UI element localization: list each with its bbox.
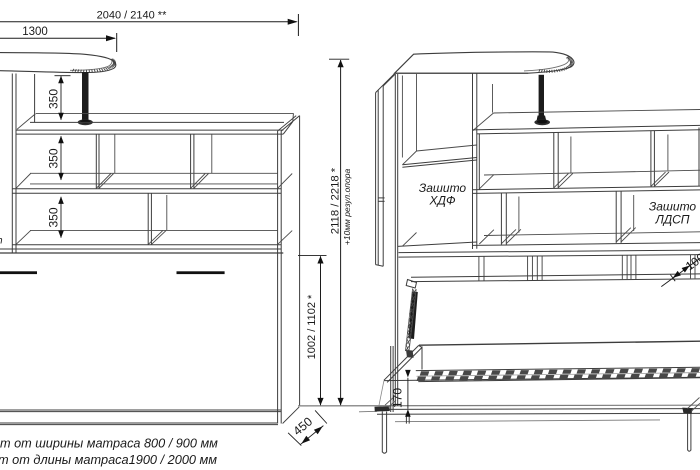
- svg-text:+10мм резул.опора: +10мм резул.опора: [342, 169, 352, 246]
- svg-text:ЛДСП: ЛДСП: [654, 212, 689, 226]
- svg-text:1002 / 1102 *: 1002 / 1102 *: [306, 294, 318, 359]
- svg-text:350: 350: [47, 207, 61, 227]
- svg-text:350: 350: [47, 89, 61, 109]
- svg-text:т от ширины матраса 800 / 900: т от ширины матраса 800 / 900 мм: [0, 437, 218, 451]
- svg-text:2040 / 2140 **: 2040 / 2140 **: [97, 10, 167, 22]
- svg-text:170: 170: [390, 388, 404, 408]
- svg-text:350: 350: [47, 148, 61, 168]
- svg-text:т от длины матраса1900 / 2000: т от длины матраса1900 / 2000 мм: [0, 452, 217, 467]
- svg-text:h: h: [0, 235, 3, 246]
- svg-text:2118 / 2218 *: 2118 / 2218 *: [330, 167, 342, 234]
- svg-text:ХДФ: ХДФ: [429, 193, 456, 207]
- svg-text:1300: 1300: [22, 26, 48, 38]
